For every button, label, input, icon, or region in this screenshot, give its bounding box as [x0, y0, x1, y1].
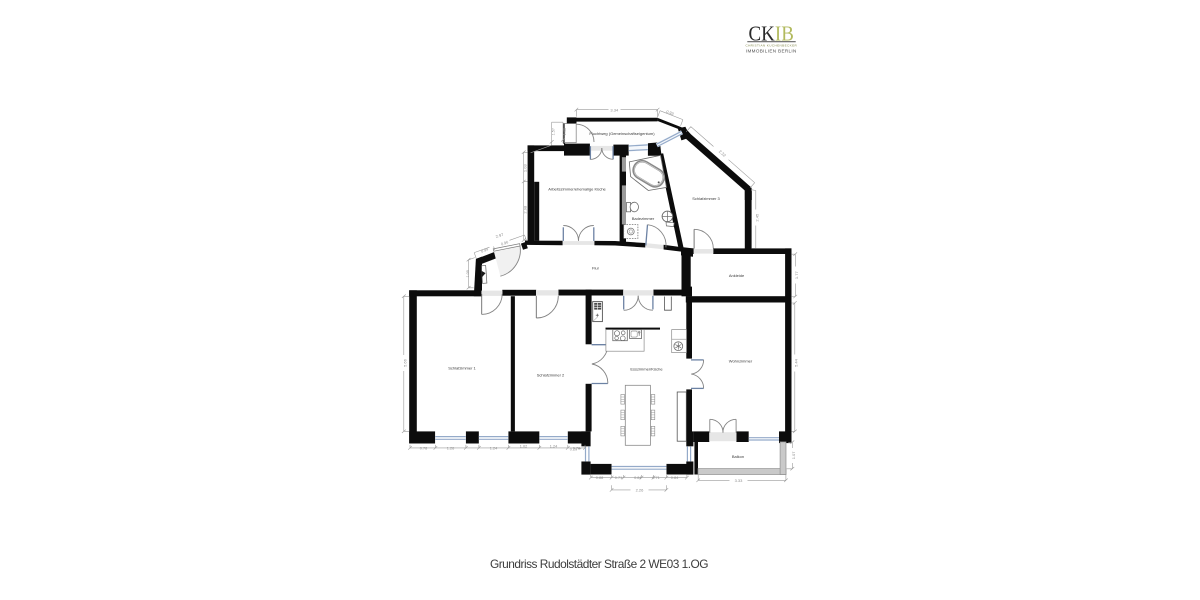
svg-text:1.07: 1.07: [791, 451, 796, 460]
svg-text:1.24: 1.24: [550, 445, 557, 449]
svg-text:Balkon: Balkon: [732, 454, 744, 459]
svg-text:0.79: 0.79: [573, 447, 580, 451]
svg-text:Schlafzimmer 2: Schlafzimmer 2: [537, 373, 565, 378]
svg-text:5.66: 5.66: [403, 358, 408, 367]
svg-text:Esszimmer/Küche: Esszimmer/Küche: [630, 367, 663, 372]
svg-text:0.71: 0.71: [652, 476, 659, 480]
svg-text:0.71: 0.71: [615, 476, 622, 480]
svg-text:Arbeitszimmer/ehemalige Küche: Arbeitszimmer/ehemalige Küche: [548, 186, 606, 191]
svg-text:1.24: 1.24: [490, 447, 497, 451]
svg-text:IMMOBILIEN BERLIN: IMMOBILIEN BERLIN: [746, 48, 797, 53]
svg-text:1.26: 1.26: [447, 447, 454, 451]
svg-text:1.57: 1.57: [551, 128, 555, 135]
svg-text:1.40: 1.40: [563, 128, 567, 135]
svg-text:2.45: 2.45: [755, 213, 760, 222]
svg-text:0.88: 0.88: [596, 476, 603, 480]
svg-text:0.84: 0.84: [634, 476, 641, 480]
svg-text:0.78: 0.78: [420, 447, 427, 451]
svg-text:1.77: 1.77: [794, 271, 799, 280]
svg-text:Fluchtweg (Gemeinschaftseigent: Fluchtweg (Gemeinschaftseigentum): [589, 131, 655, 136]
svg-text:3.34: 3.34: [610, 107, 619, 112]
svg-text:1.03: 1.03: [523, 164, 528, 173]
svg-text:Ankleide: Ankleide: [729, 273, 745, 278]
svg-text:Badezimmer: Badezimmer: [632, 216, 655, 221]
svg-text:2.98: 2.98: [523, 205, 528, 214]
svg-text:Flur: Flur: [592, 266, 600, 271]
svg-text:Schlafzimmer 3: Schlafzimmer 3: [692, 196, 720, 201]
svg-text:Wohnzimmer: Wohnzimmer: [729, 359, 753, 364]
svg-text:CHRISTIAN KUCHENBECKER: CHRISTIAN KUCHENBECKER: [745, 43, 797, 47]
svg-text:0.84: 0.84: [671, 476, 678, 480]
svg-text:Schlafzimmer 1: Schlafzimmer 1: [448, 366, 476, 371]
svg-text:2.26: 2.26: [636, 488, 645, 493]
svg-text:Grundriss Rudolstädter Straße: Grundriss Rudolstädter Straße 2 WE03 1.O…: [490, 557, 708, 571]
svg-text:1.09: 1.09: [466, 270, 470, 277]
svg-text:1.02: 1.02: [520, 445, 527, 449]
svg-text:5.44: 5.44: [794, 358, 799, 367]
svg-text:3.33: 3.33: [735, 478, 744, 483]
